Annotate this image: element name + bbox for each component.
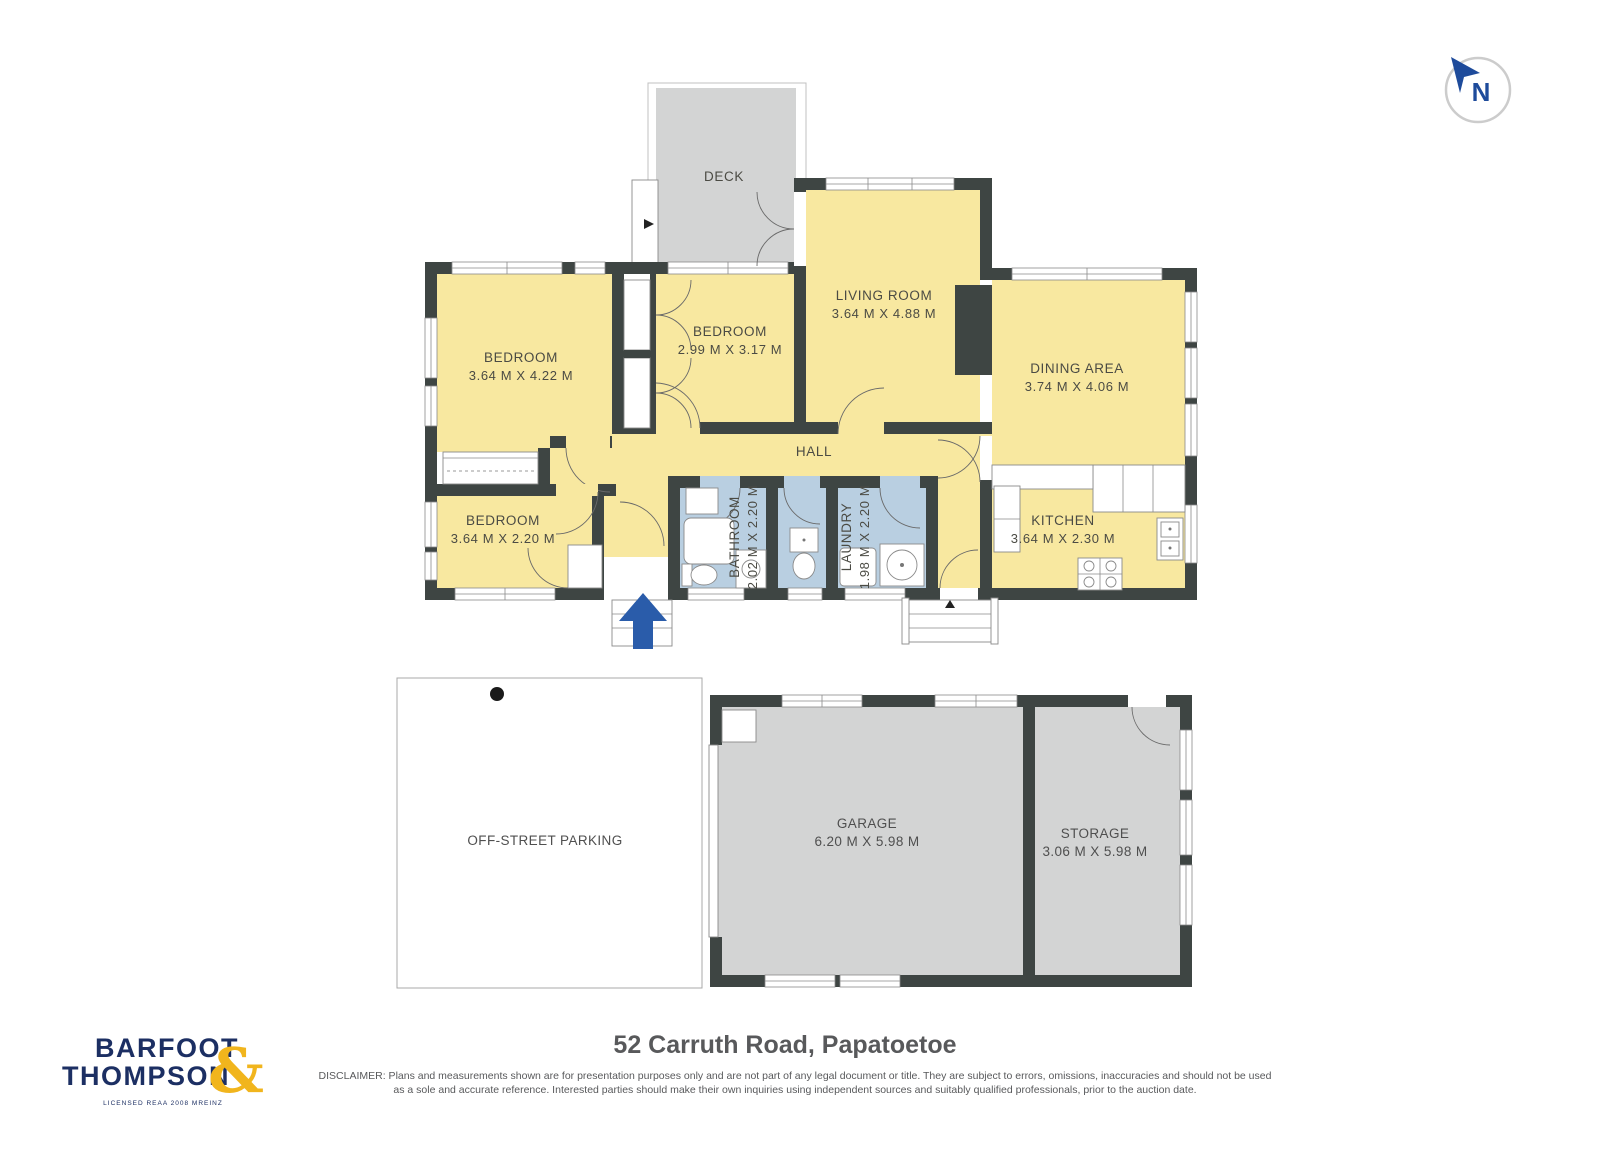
fireplace-block — [955, 285, 992, 375]
parking-marker-icon — [490, 687, 504, 701]
entries — [612, 593, 998, 649]
kitchen-label: KITCHEN — [1031, 513, 1094, 528]
toilet-bowl — [691, 565, 717, 585]
closet-2 — [624, 358, 650, 428]
bedroom-front-label: BEDROOM — [693, 324, 767, 339]
brand-thompson: THOMPSON — [62, 1061, 230, 1091]
garage-cabinet — [722, 710, 756, 742]
bedroom-front-dims: 2.99 M X 3.17 M — [678, 342, 782, 357]
bathroom-dims: 2.02 M X 2.20 M — [745, 485, 760, 589]
bathroom-cabinet — [686, 488, 718, 514]
floorplan-drawing: N DECK LIVING ROOM 3.64 M X 4.88 M DININ… — [0, 0, 1600, 1167]
garage-dims: 6.20 M X 5.98 M — [814, 834, 919, 849]
north-compass: N — [1446, 57, 1510, 122]
bedroom-small-dims: 3.64 M X 2.20 M — [451, 531, 555, 546]
bedroom-small-label: BEDROOM — [466, 513, 540, 528]
dining-label: DINING AREA — [1030, 361, 1124, 376]
closet-1 — [624, 280, 650, 350]
dining-dims: 3.74 M X 4.06 M — [1025, 379, 1129, 394]
deck-label: DECK — [704, 169, 744, 184]
parking-label: OFF-STREET PARKING — [467, 833, 622, 848]
bathroom-label: BATHROOM — [727, 496, 742, 578]
property-address-title: 52 Carruth Road, Papatoetoe — [613, 1031, 956, 1059]
disclaimer-line-1: DISCLAIMER: Plans and measurements shown… — [319, 1070, 1272, 1082]
garage-door — [709, 745, 718, 937]
toilet-tank — [682, 564, 692, 586]
wc-bowl — [793, 553, 815, 579]
storage-dims: 3.06 M X 5.98 M — [1042, 844, 1147, 859]
kitchen-dims: 3.64 M X 2.30 M — [1011, 531, 1115, 546]
disclaimer-line-2: as a sole and accurate reference. Intere… — [393, 1084, 1196, 1096]
brand-license-text: LICENSED REAA 2008 MREINZ — [103, 1100, 223, 1107]
garage-label: GARAGE — [837, 816, 897, 831]
hall-label: HALL — [796, 444, 832, 459]
laundry-dims: 1.98 M X 2.20 M — [857, 485, 872, 589]
living-label: LIVING ROOM — [836, 288, 933, 303]
wardrobe — [443, 452, 538, 484]
living-dims: 3.64 M X 4.88 M — [832, 306, 936, 321]
closet-3 — [568, 545, 602, 588]
storage-label: STORAGE — [1061, 826, 1130, 841]
compass-n-label: N — [1472, 77, 1491, 107]
floorplan-page: N DECK LIVING ROOM 3.64 M X 4.88 M DININ… — [0, 0, 1600, 1167]
front-porch — [604, 557, 668, 600]
storage-fill — [1023, 695, 1180, 987]
barfoot-thompson-logo: BARFOOT THOMPSON & LICENSED REAA 2008 MR… — [62, 1033, 264, 1107]
brand-ampersand: & — [208, 1034, 264, 1107]
laundry-label: LAUNDRY — [839, 503, 854, 571]
bedroom-main-dims: 3.64 M X 4.22 M — [469, 368, 573, 383]
kitchen-counter — [1093, 465, 1185, 512]
hall-fill — [550, 434, 992, 482]
footer: BARFOOT THOMPSON & LICENSED REAA 2008 MR… — [62, 1031, 1272, 1107]
bedroom-main-label: BEDROOM — [484, 350, 558, 365]
